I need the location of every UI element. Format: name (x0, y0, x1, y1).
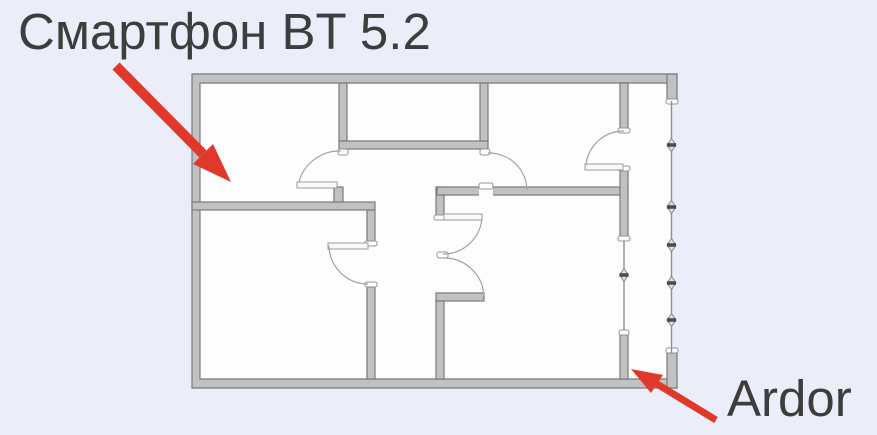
hall-door-stub (334, 187, 343, 202)
right-vertical-wall-a (620, 83, 628, 130)
left-vertical-wall-lower (367, 287, 375, 379)
plan-interior (196, 78, 672, 384)
left-vertical-wall-upper (367, 210, 375, 243)
middle-vertical-wall-lower (436, 301, 444, 379)
ardor-label: Ardor (727, 371, 852, 427)
smartphone-label: Смартфон BT 5.2 (18, 4, 431, 60)
page: Смартфон BT 5.2 Ardor (0, 0, 877, 435)
right-vertical-wall-c (620, 333, 628, 379)
left-horizontal-wall (192, 202, 375, 210)
right-horizontal-wall (437, 187, 628, 195)
right-wall-bottom-stub (667, 353, 677, 388)
right-wall-top-stub (667, 74, 677, 101)
middle-bottom-stub (436, 293, 484, 301)
right-vertical-wall-b (620, 169, 628, 238)
